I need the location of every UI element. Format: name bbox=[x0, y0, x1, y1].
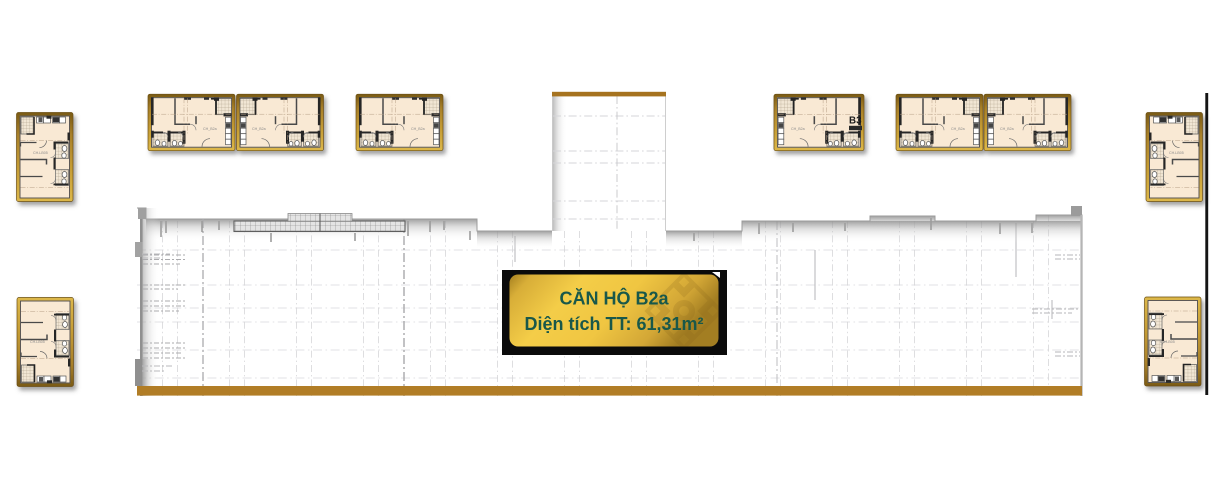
svg-text:CH-LB05: CH-LB05 bbox=[33, 151, 48, 155]
svg-text:CH-LB05: CH-LB05 bbox=[1160, 340, 1175, 344]
svg-text:CH-LB05: CH-LB05 bbox=[30, 340, 45, 344]
svg-text:CH_B2a: CH_B2a bbox=[252, 127, 266, 131]
svg-text:CH_B2a: CH_B2a bbox=[411, 127, 425, 131]
svg-text:CH_B2a: CH_B2a bbox=[951, 127, 965, 131]
svg-text:CH_B2a: CH_B2a bbox=[1000, 127, 1014, 131]
svg-text:B3: B3 bbox=[849, 116, 862, 127]
svg-text:CH_B2a: CH_B2a bbox=[791, 127, 805, 131]
svg-text:CH_B2a: CH_B2a bbox=[203, 127, 217, 131]
svg-text:CH-LB05: CH-LB05 bbox=[1169, 151, 1184, 155]
svg-text:CĂN HỘ B2a: CĂN HỘ B2a bbox=[559, 288, 669, 309]
svg-text:Diện tích TT: 61,31m²: Diện tích TT: 61,31m² bbox=[524, 314, 703, 334]
